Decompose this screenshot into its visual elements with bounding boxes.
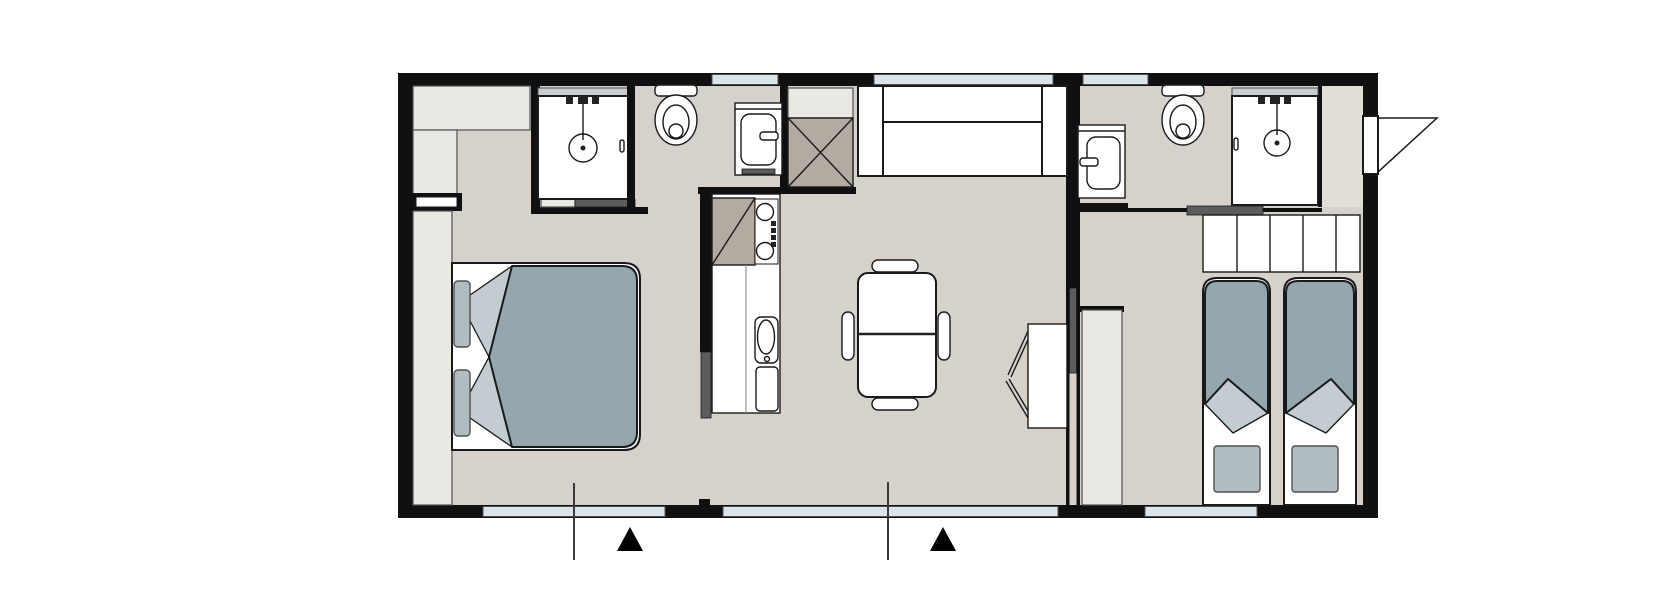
shower-1 xyxy=(538,86,635,207)
single-bed-2 xyxy=(1284,278,1356,505)
double-bed xyxy=(452,263,640,450)
kitchen xyxy=(712,194,780,413)
chair-right xyxy=(938,312,950,360)
shower-glass-top xyxy=(538,88,633,96)
shower-2 xyxy=(1232,88,1318,205)
window-top-1 xyxy=(712,75,778,85)
tap-icon xyxy=(1080,158,1098,166)
sofa-armrest xyxy=(858,86,883,176)
bathroom1-sliding-door xyxy=(575,199,635,207)
sofa-armrest xyxy=(1042,86,1067,176)
tech-cupboard xyxy=(788,88,853,187)
wardrobe-left-upper xyxy=(413,130,457,194)
shower-door-handle xyxy=(620,140,624,152)
doorstop-notch xyxy=(699,499,710,505)
desk-top xyxy=(1028,324,1067,428)
drawer xyxy=(742,169,775,174)
window-top-3 xyxy=(1083,75,1148,85)
sofa-seat xyxy=(883,122,1042,176)
window-top-2 xyxy=(874,75,1053,85)
shower-door-handle xyxy=(1234,138,1238,150)
tap-icon xyxy=(760,132,778,140)
pillow xyxy=(1292,446,1338,492)
toilet-1 xyxy=(655,85,697,145)
toilet-2 xyxy=(1162,85,1204,145)
chair-left xyxy=(842,312,854,360)
single-bed-1 xyxy=(1203,278,1270,505)
bathroom2-sliding-door xyxy=(1187,206,1263,215)
wardrobe-top xyxy=(413,86,530,130)
washbasin-1 xyxy=(735,103,782,175)
shower-glass-top xyxy=(1232,88,1318,96)
dining-set xyxy=(842,260,950,410)
shower-tray xyxy=(1232,96,1318,205)
window-bottom-3 xyxy=(1145,507,1257,517)
wardrobe-left-lower xyxy=(413,211,452,505)
window-bottom-2 xyxy=(723,507,1058,517)
pillow xyxy=(454,281,470,347)
vestibule-floor xyxy=(1318,86,1365,207)
pillow xyxy=(1214,446,1260,492)
wardrobe-right xyxy=(1082,310,1122,505)
floorplan-canvas xyxy=(0,0,1680,612)
chair-bottom xyxy=(872,398,918,410)
washbasin-2 xyxy=(1078,125,1125,198)
sofa-back xyxy=(883,86,1042,122)
bedroom1-sliding-door xyxy=(701,352,711,418)
headboard-cabinets xyxy=(1203,215,1360,272)
pillow xyxy=(454,370,470,436)
bedroom2-sliding-door xyxy=(1070,288,1077,373)
duvet xyxy=(489,266,637,447)
bathroom1-sill xyxy=(541,199,575,207)
entry-door-leaf xyxy=(1363,116,1378,174)
shelf xyxy=(788,88,853,118)
chair-top xyxy=(872,260,918,272)
sofa xyxy=(858,86,1067,176)
